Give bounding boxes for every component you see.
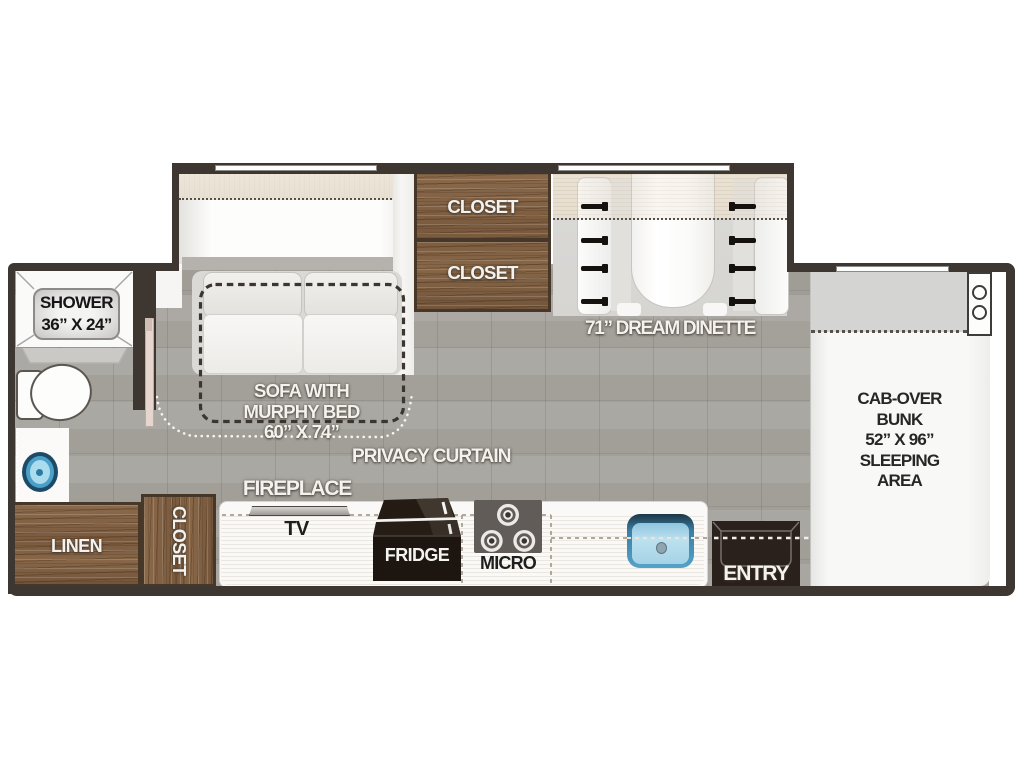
svg-text:FRIDGE: FRIDGE	[385, 545, 450, 565]
